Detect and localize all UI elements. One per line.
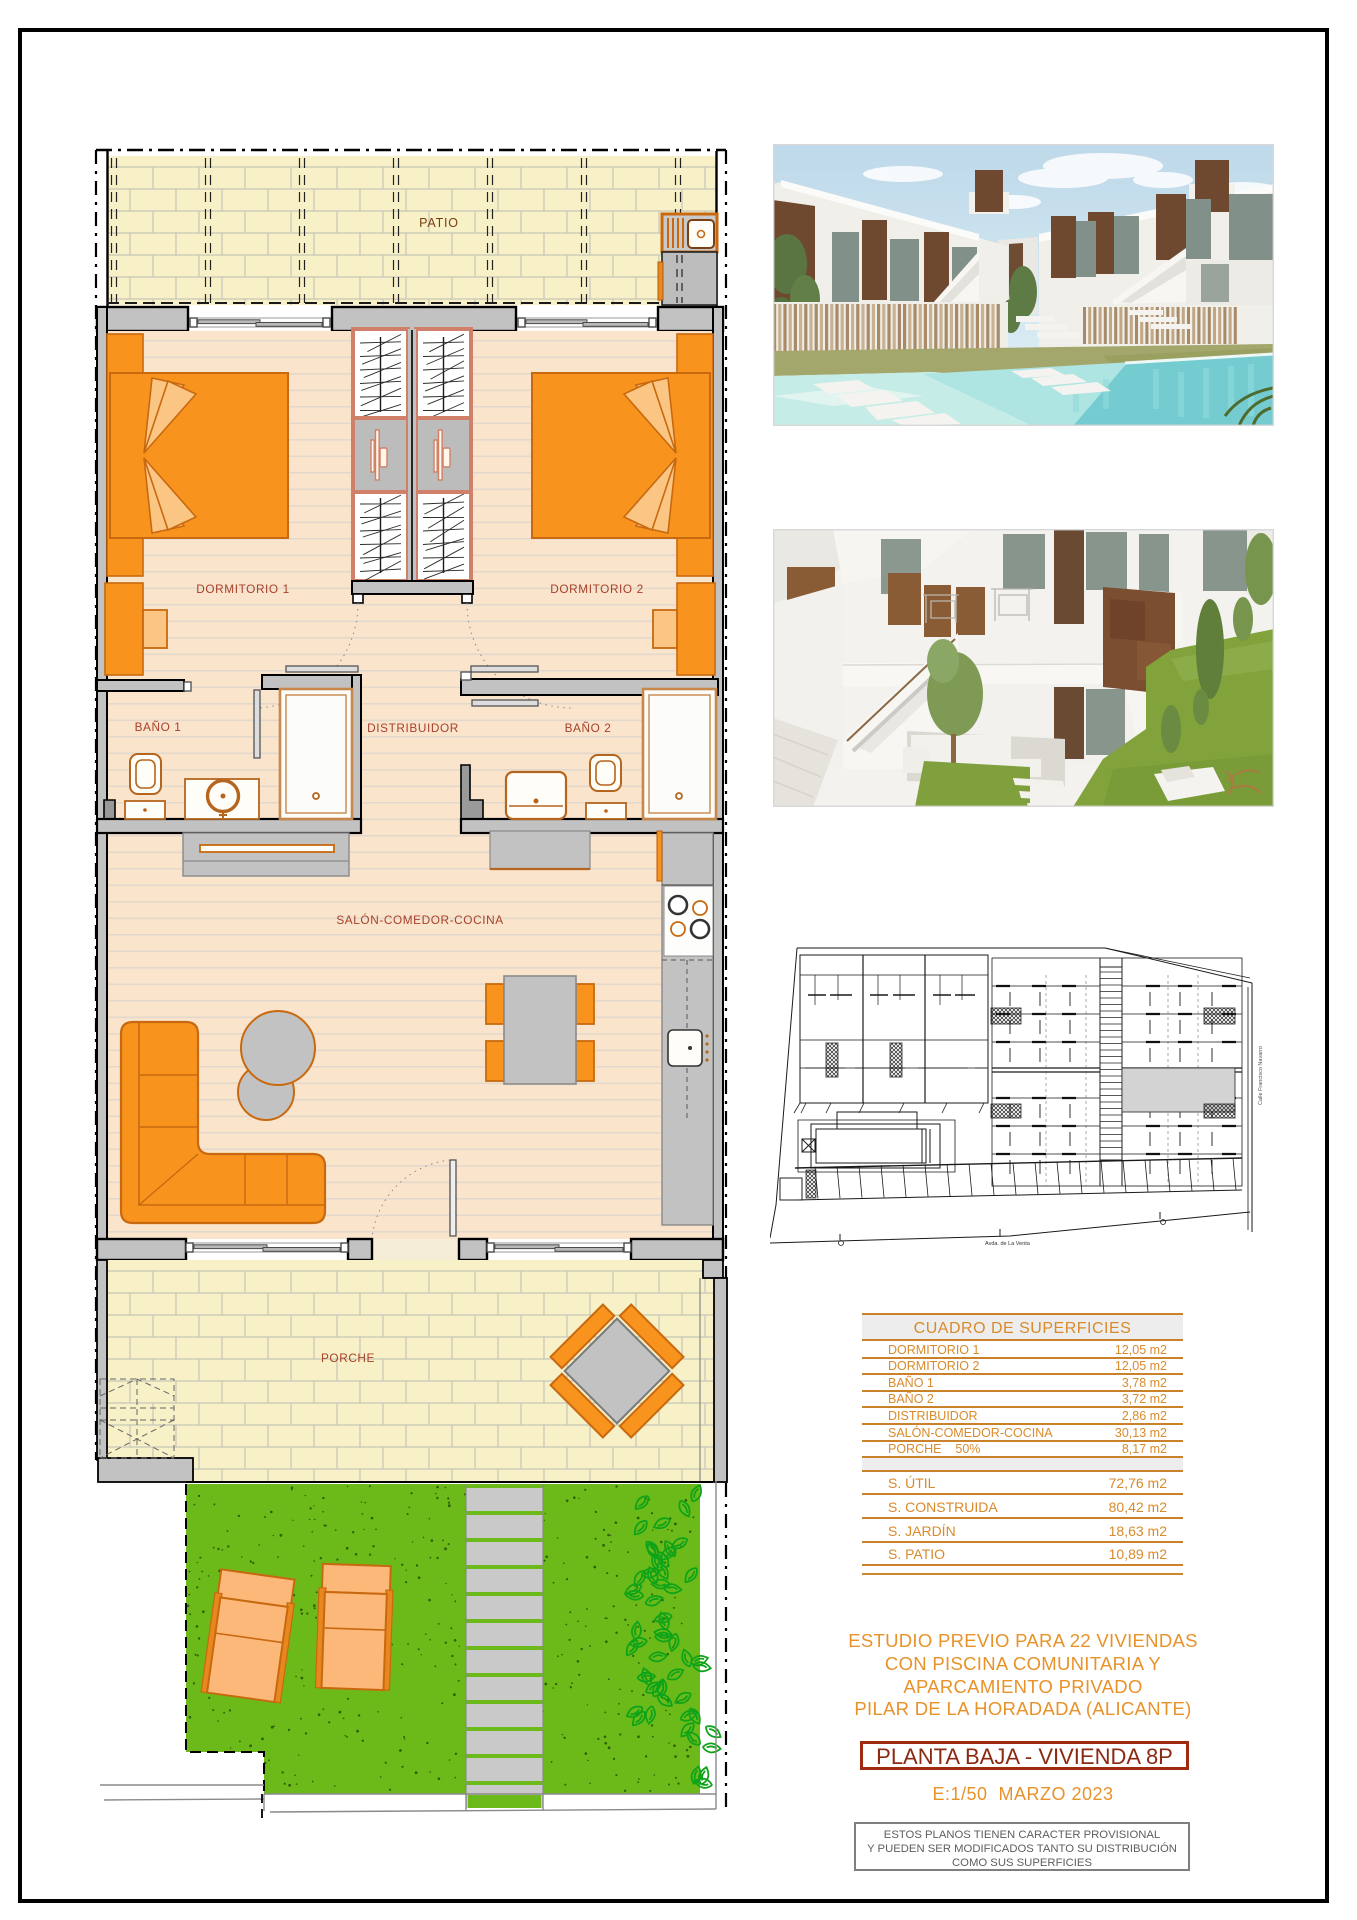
svg-text:DORMITORIO 1: DORMITORIO 1 (196, 582, 290, 596)
svg-text:Calle Francisco Navarro: Calle Francisco Navarro (1258, 1046, 1264, 1105)
svg-text:PATIO: PATIO (419, 216, 459, 230)
svg-text:BAÑO 2: BAÑO 2 (565, 721, 612, 735)
svg-text:DISTRIBUIDOR: DISTRIBUIDOR (367, 721, 459, 735)
svg-text:BAÑO 1: BAÑO 1 (135, 720, 182, 734)
svg-text:SALÓN-COMEDOR-COCINA: SALÓN-COMEDOR-COCINA (336, 913, 503, 927)
svg-text:Avda. de La Venta: Avda. de La Venta (985, 1241, 1031, 1247)
svg-text:DORMITORIO 2: DORMITORIO 2 (550, 582, 644, 596)
svg-text:PORCHE: PORCHE (321, 1351, 375, 1365)
